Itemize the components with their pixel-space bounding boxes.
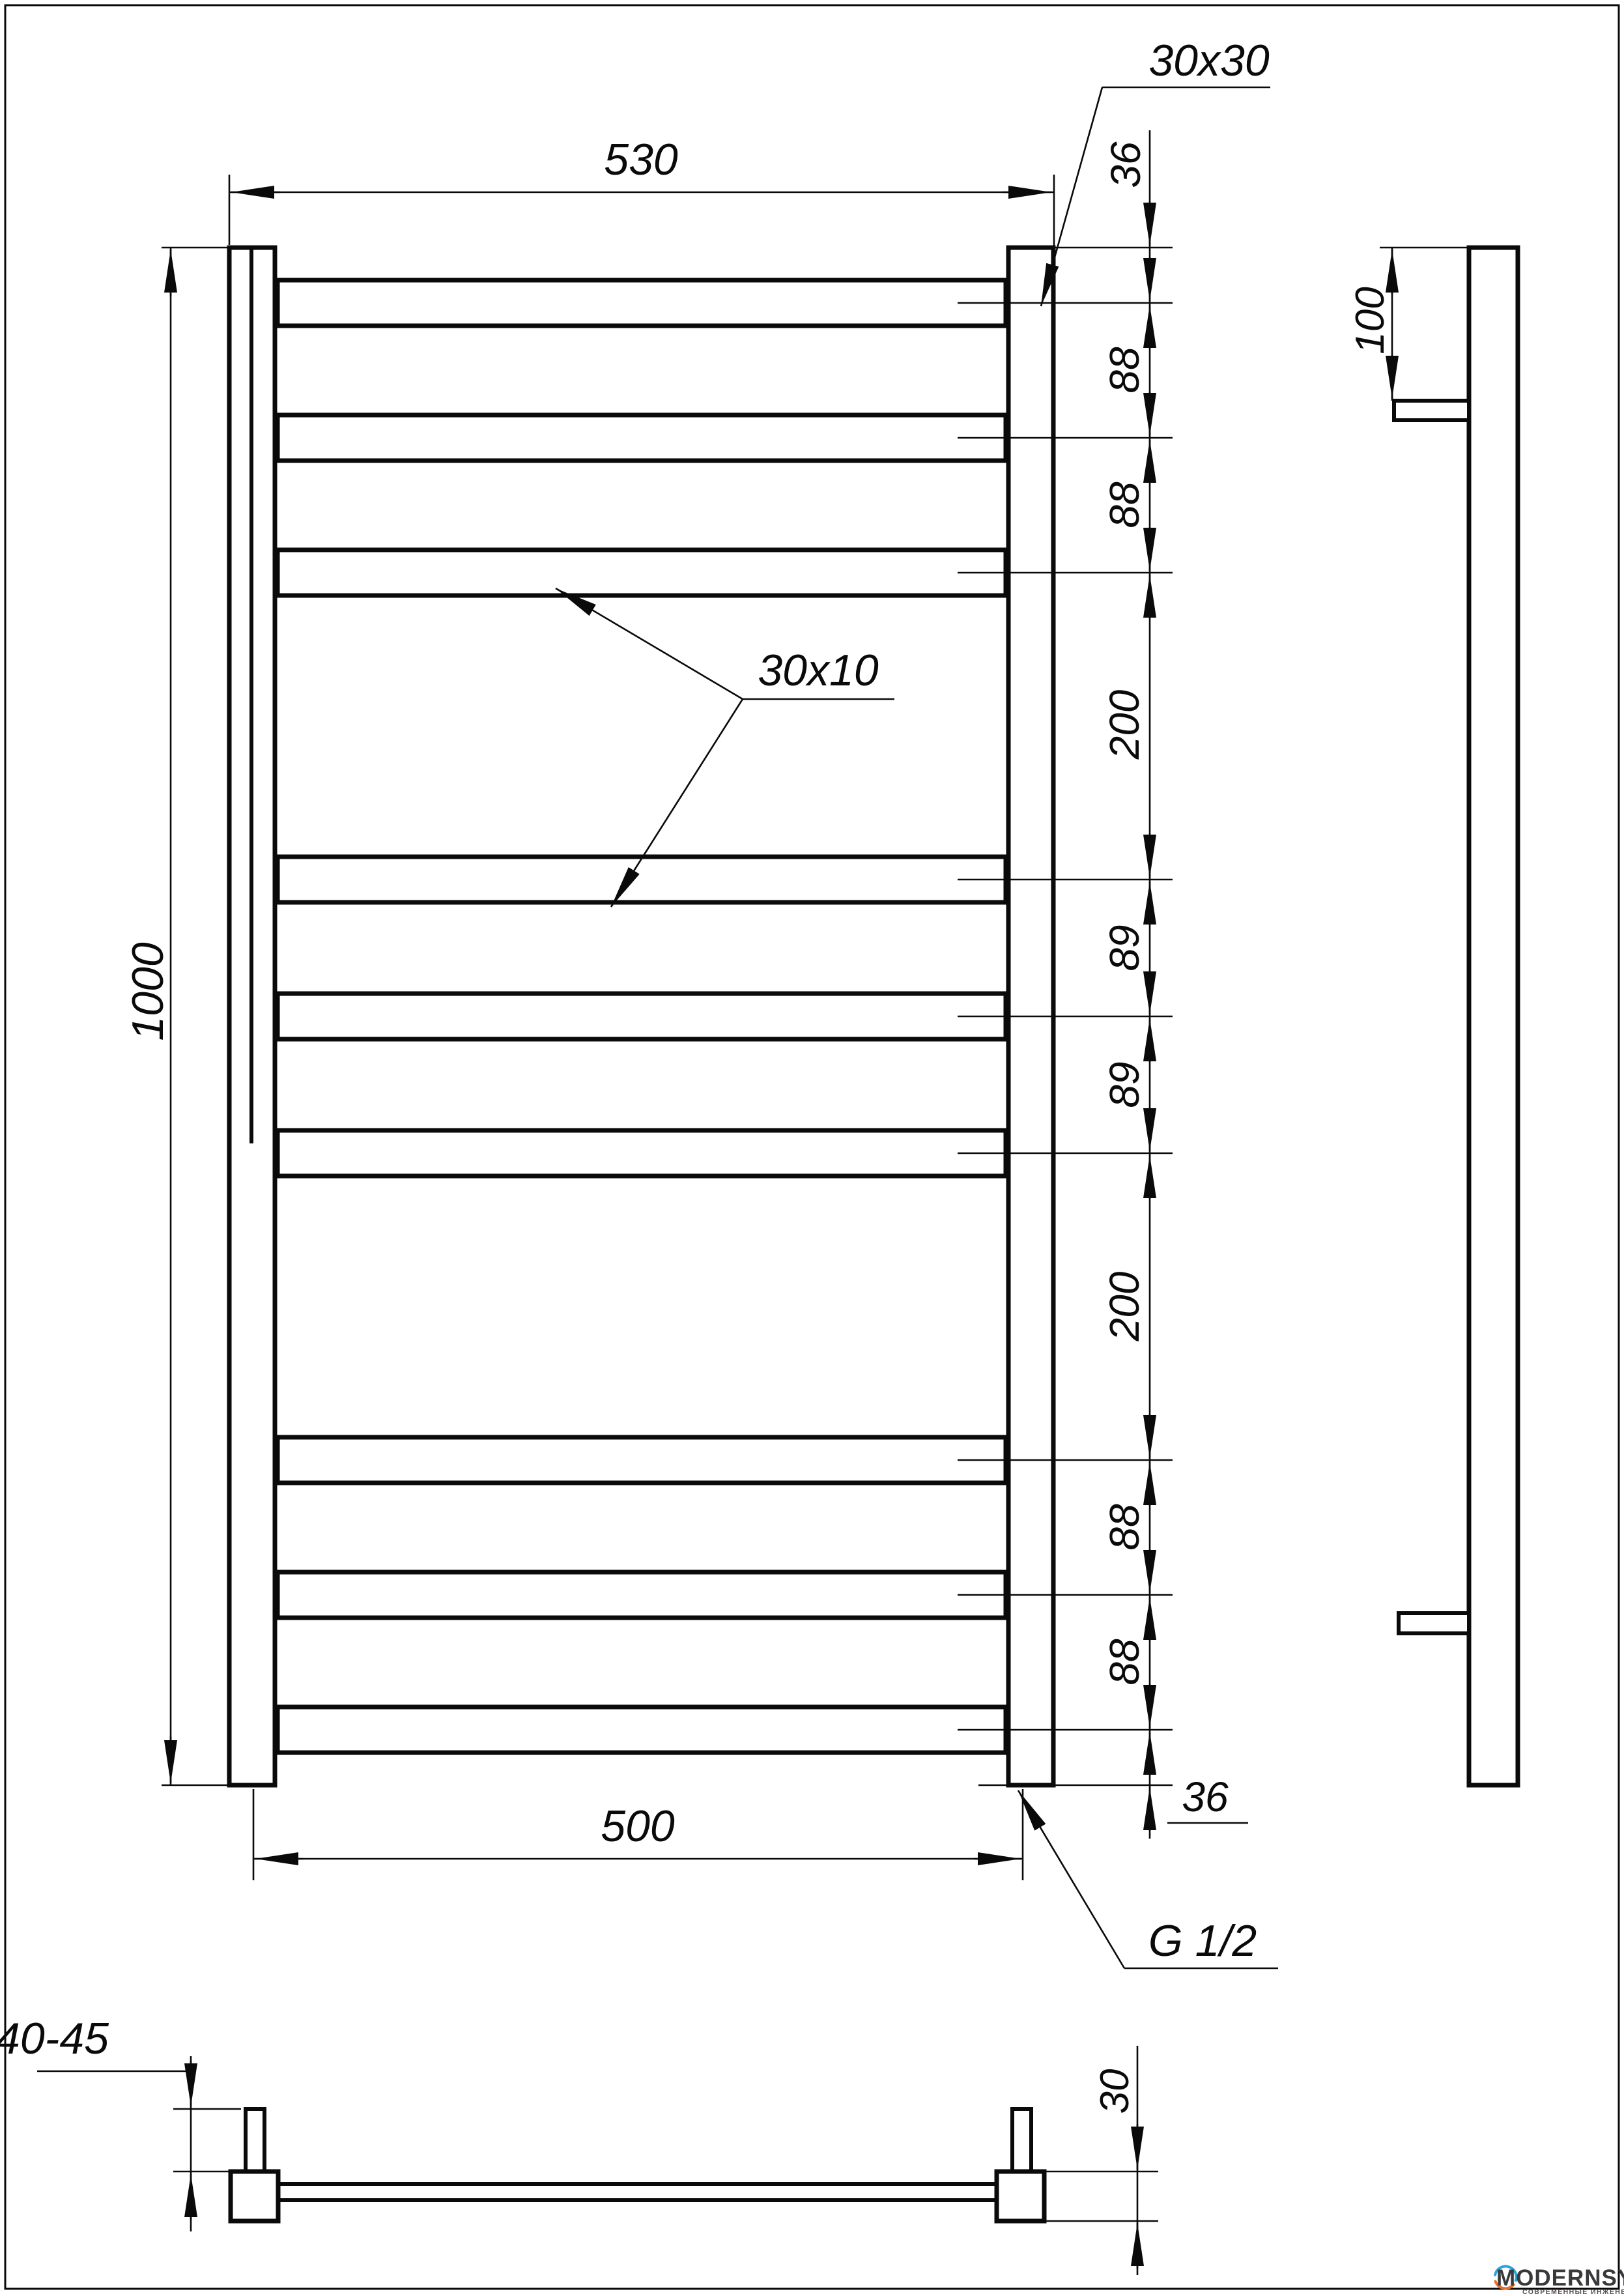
side-post — [1469, 248, 1518, 1785]
dimension-100: 100 — [1348, 248, 1468, 401]
dim-200-text: 200 — [1101, 1271, 1148, 1341]
dim-88-text: 88 — [1101, 347, 1148, 394]
label-thread: G 1/2 — [1018, 1790, 1278, 1968]
right-connection-stub — [1012, 2109, 1031, 2172]
rung-bar — [278, 857, 1006, 902]
technical-drawing-canvas: 530 500 1000 — [0, 0, 1624, 2294]
label-g12-text: G 1/2 — [1148, 1916, 1257, 1966]
rung-bar — [278, 280, 1006, 326]
side-bracket-bottom — [1399, 1613, 1469, 1633]
left-post-section — [231, 2172, 278, 2221]
dimension-40-45: 40-45 — [0, 2014, 241, 2231]
rung-bars — [278, 280, 1006, 1753]
logo-brand-text: MODERNSYS — [1496, 2265, 1624, 2291]
brand-logo: MODERNSYS СОВРЕМЕННЫЕ ИНЖЕНЕРНЫЕ СИСТЕМЫ — [1495, 2265, 1624, 2294]
dimension-1000: 1000 — [123, 248, 229, 1785]
dim-40-45-text: 40-45 — [0, 2014, 109, 2063]
dim-89-text: 89 — [1101, 925, 1148, 971]
dimension-500: 500 — [253, 1789, 1023, 1880]
dim-88-text: 88 — [1101, 481, 1148, 528]
rung-bar — [278, 1437, 1006, 1483]
dim-200-text: 200 — [1101, 689, 1148, 760]
side-view — [1394, 248, 1518, 1785]
label-post-profile: 30x30 — [1041, 36, 1270, 306]
rung-bar — [278, 1130, 1006, 1176]
rung-bar — [278, 1707, 1006, 1753]
right-post-section — [997, 2172, 1044, 2221]
side-bracket-top — [1394, 401, 1469, 420]
dimension-30: 30 — [1046, 2046, 1158, 2275]
dim-30-text: 30 — [1092, 2069, 1137, 2114]
dim-530-text: 530 — [604, 135, 678, 184]
dim-88-text: 88 — [1101, 1504, 1148, 1551]
rung-bar — [278, 1572, 1006, 1618]
dim-36-top-text: 36 — [1102, 141, 1149, 188]
dim-88-text: 88 — [1101, 1639, 1148, 1685]
left-connection-stub — [246, 2109, 264, 2172]
logo-tagline-text: СОВРЕМЕННЫЕ ИНЖЕНЕРНЫЕ СИСТЕМЫ — [1522, 2288, 1624, 2294]
bottom-view — [231, 2109, 1044, 2221]
dim-1000-text: 1000 — [123, 942, 173, 1040]
rung-bar — [278, 415, 1006, 461]
dim-100-text: 100 — [1348, 287, 1393, 354]
dim-500-text: 500 — [601, 1801, 675, 1851]
label-30x30-text: 30x30 — [1148, 36, 1269, 85]
dim-36-bottom-text: 36 — [1182, 1773, 1229, 1820]
dim-89-text: 89 — [1101, 1061, 1148, 1108]
front-view — [229, 248, 1053, 1785]
rung-bar — [278, 994, 1006, 1039]
label-30x10-text: 30x10 — [758, 646, 878, 695]
rung-bar — [278, 550, 1006, 595]
